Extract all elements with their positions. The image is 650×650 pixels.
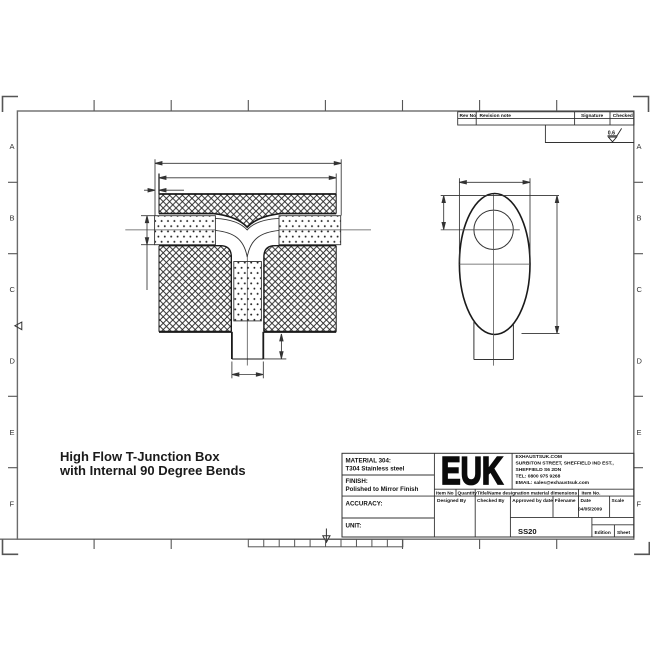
svg-text:Polished to Mirror Finish: Polished to Mirror Finish: [346, 486, 419, 493]
svg-text:B: B: [10, 214, 15, 223]
svg-text:Title/Name designation materia: Title/Name designation material dimensio…: [477, 490, 577, 496]
svg-text:FINISH:: FINISH:: [346, 478, 368, 485]
svg-text:A: A: [637, 142, 642, 151]
svg-text:Designed By: Designed By: [437, 498, 466, 504]
svg-text:F: F: [637, 500, 642, 509]
svg-text:Revision note: Revision note: [480, 113, 512, 119]
svg-text:UNIT:: UNIT:: [346, 523, 362, 530]
svg-text:B: B: [637, 214, 642, 223]
svg-text:Quantity: Quantity: [458, 490, 478, 496]
svg-text:Signature: Signature: [581, 113, 603, 119]
svg-text:Approved by date: Approved by date: [512, 498, 553, 504]
svg-text:EMAIL: sales@exhaustsuk.com: EMAIL: sales@exhaustsuk.com: [516, 480, 590, 486]
svg-text:Rev No: Rev No: [460, 113, 477, 119]
svg-text:with Internal 90 Degree Bends: with Internal 90 Degree Bends: [59, 463, 246, 478]
svg-text:MATERIAL 304:: MATERIAL 304:: [346, 458, 392, 465]
svg-text:Item No.: Item No.: [582, 490, 601, 496]
svg-text:Item No: Item No: [436, 490, 454, 496]
svg-text:ACCURACY:: ACCURACY:: [346, 501, 383, 508]
svg-text:F: F: [10, 500, 15, 509]
svg-text:0.6: 0.6: [608, 130, 615, 136]
svg-text:04/05/2009: 04/05/2009: [578, 507, 602, 513]
svg-text:Scale: Scale: [612, 498, 625, 504]
svg-text:High Flow T-Junction Box: High Flow T-Junction Box: [60, 449, 220, 464]
svg-text:D: D: [10, 357, 16, 366]
svg-text:SHEFFIELD S6 2DN: SHEFFIELD S6 2DN: [516, 467, 562, 473]
svg-text:Checked: Checked: [613, 113, 633, 119]
svg-text:A: A: [10, 142, 15, 151]
svg-text:TEL: 0800 975 9268: TEL: 0800 975 9268: [516, 473, 561, 479]
svg-text:SS20: SS20: [518, 527, 537, 536]
svg-text:Filename: Filename: [555, 498, 576, 504]
svg-text:E: E: [10, 428, 15, 437]
svg-text:T304 Stainless steel: T304 Stainless steel: [346, 466, 405, 473]
svg-text:C: C: [10, 285, 16, 294]
svg-text:Edition: Edition: [595, 530, 611, 536]
svg-text:Date: Date: [581, 498, 592, 504]
svg-text:D: D: [637, 357, 643, 366]
svg-text:EXHAUSTSUK.COM: EXHAUSTSUK.COM: [516, 454, 562, 460]
svg-text:C: C: [637, 285, 643, 294]
svg-text:SURBITON STREET, SHEFFIELD IND: SURBITON STREET, SHEFFIELD IND EST.,: [516, 461, 615, 467]
svg-text:EUK: EUK: [441, 451, 503, 494]
svg-text:Checked By: Checked By: [477, 498, 505, 504]
svg-text:E: E: [637, 428, 642, 437]
svg-text:Sheet: Sheet: [617, 530, 630, 536]
